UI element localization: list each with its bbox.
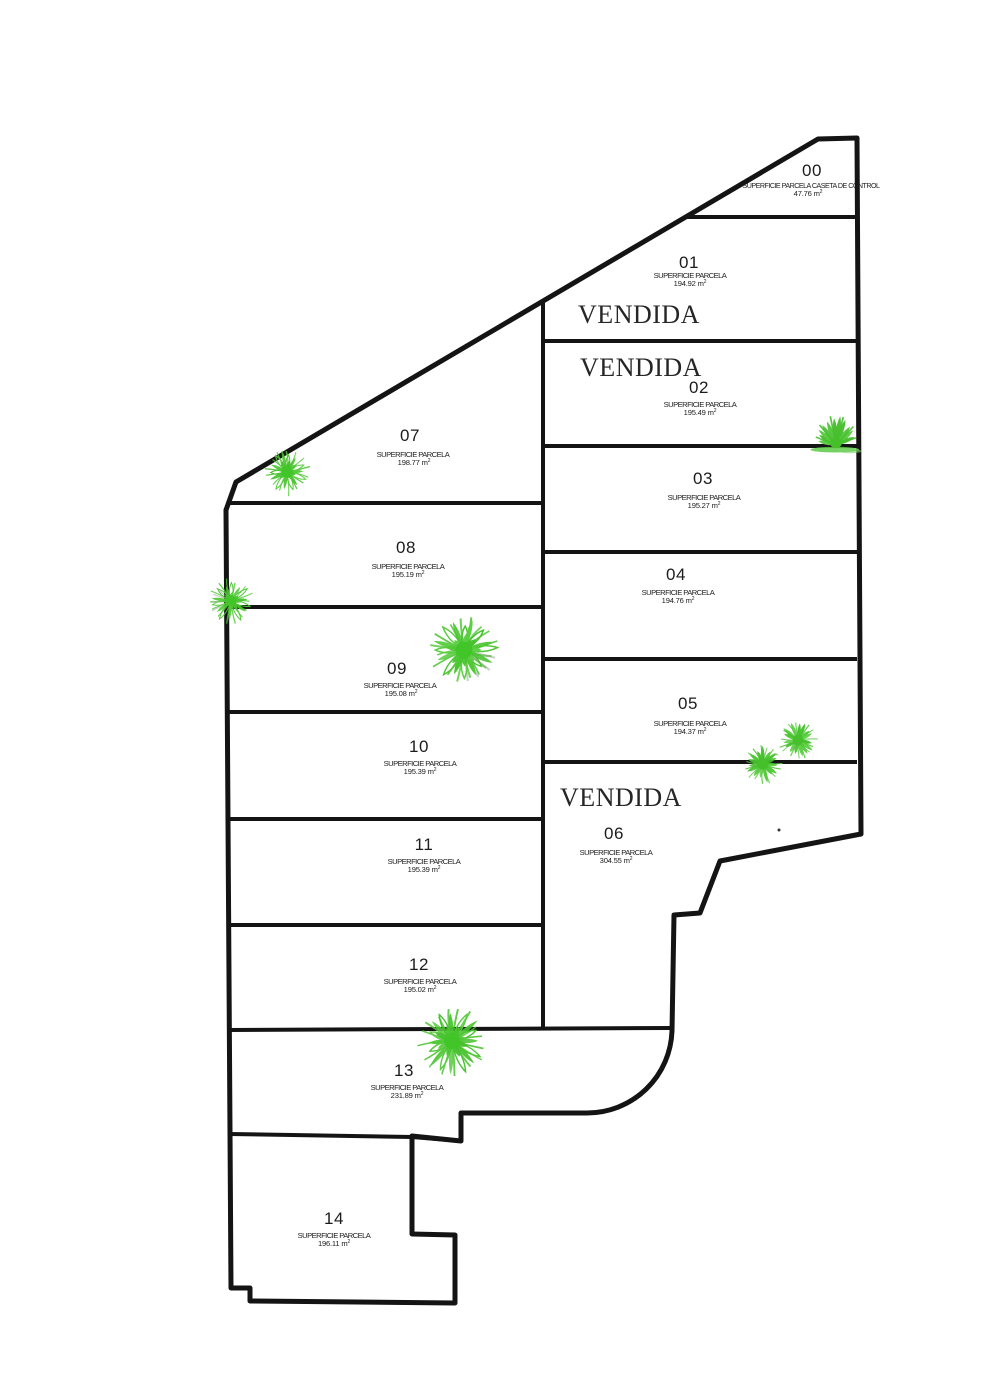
svg-text:304.55 m2: 304.55 m2 — [600, 856, 633, 865]
svg-text:198.77 m2: 198.77 m2 — [398, 458, 431, 467]
svg-text:195.39 m2: 195.39 m2 — [404, 767, 437, 776]
svg-text:01: 01 — [679, 253, 699, 272]
svg-text:194.76 m2: 194.76 m2 — [662, 596, 695, 605]
svg-text:231.89 m2: 231.89 m2 — [391, 1091, 424, 1100]
svg-text:47.76 m2: 47.76 m2 — [794, 189, 823, 198]
svg-text:195.27 m2: 195.27 m2 — [688, 501, 721, 510]
svg-text:06: 06 — [604, 824, 624, 843]
svg-text:13: 13 — [394, 1061, 414, 1080]
svg-text:196.11 m2: 196.11 m2 — [318, 1239, 351, 1248]
svg-text:08: 08 — [396, 538, 416, 557]
svg-text:02: 02 — [689, 378, 709, 397]
svg-text:12: 12 — [409, 955, 429, 974]
svg-text:194.92 m2: 194.92 m2 — [674, 279, 707, 288]
svg-text:04: 04 — [666, 565, 686, 584]
svg-text:05: 05 — [678, 694, 698, 713]
svg-text:11: 11 — [415, 835, 434, 854]
svg-text:195.19 m2: 195.19 m2 — [392, 570, 425, 579]
svg-text:195.49 m2: 195.49 m2 — [684, 408, 717, 417]
svg-text:195.08 m2: 195.08 m2 — [385, 689, 418, 698]
svg-text:195.39 m2: 195.39 m2 — [408, 865, 441, 874]
svg-text:09: 09 — [387, 659, 407, 678]
svg-text:VENDIDA: VENDIDA — [578, 300, 700, 329]
svg-text:195.02 m2: 195.02 m2 — [404, 985, 437, 994]
svg-text:VENDIDA: VENDIDA — [560, 783, 682, 812]
svg-text:14: 14 — [324, 1209, 344, 1228]
svg-text:07: 07 — [400, 426, 420, 445]
svg-text:194.37 m2: 194.37 m2 — [674, 727, 707, 736]
svg-text:10: 10 — [409, 737, 429, 756]
svg-text:00: 00 — [802, 161, 822, 180]
svg-text:VENDIDA: VENDIDA — [580, 353, 702, 382]
svg-text:03: 03 — [693, 469, 713, 488]
